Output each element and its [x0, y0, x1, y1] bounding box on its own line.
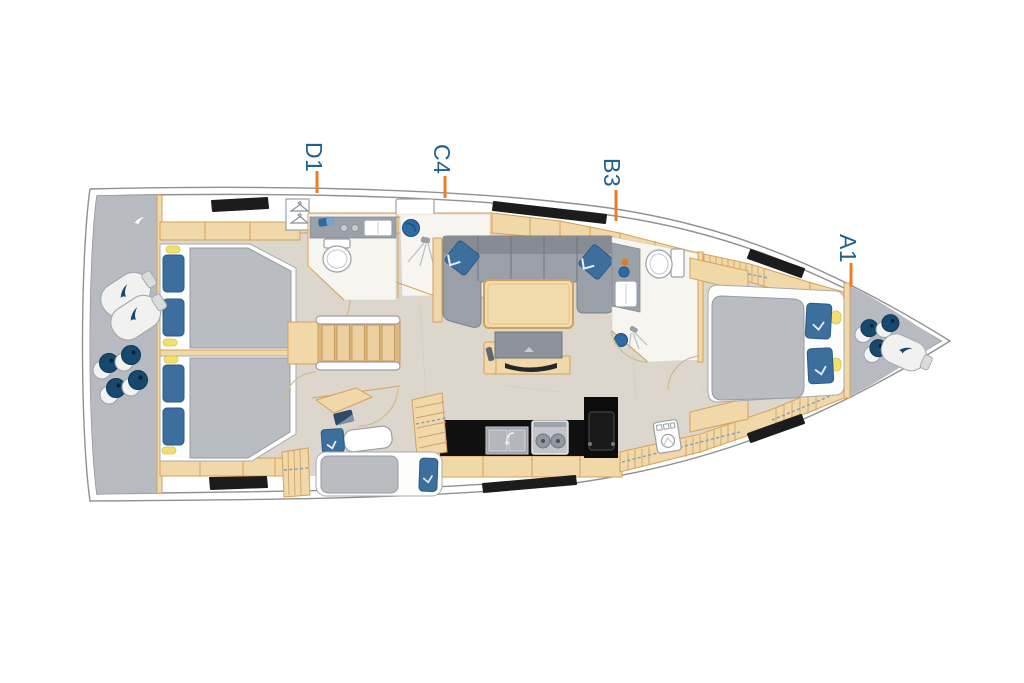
shower-drain-icon	[403, 220, 420, 237]
stair-treads	[322, 325, 395, 361]
aft-cabin-port-lower	[160, 356, 296, 461]
sink-knob	[352, 225, 359, 232]
pillow-icon	[419, 458, 438, 492]
reading-light-icon	[163, 339, 177, 346]
reading-light-icon	[831, 311, 841, 324]
tv-screen-icon	[495, 332, 562, 358]
cabin-label-a1: A1	[835, 234, 861, 263]
toilet-tank	[671, 249, 684, 277]
single-berth-mattress	[321, 456, 398, 493]
slatted-locker	[412, 393, 447, 456]
berth-divider	[160, 350, 296, 356]
port-aft-window	[212, 198, 268, 211]
double-berth-mattress	[190, 248, 291, 348]
sink-knob	[341, 225, 348, 232]
island-berth-mattress	[712, 296, 804, 400]
companionway-stairs	[288, 316, 400, 370]
pillow-icon	[805, 303, 832, 339]
cabin-label-d1: D1	[301, 142, 327, 172]
washing-machine-icon	[653, 419, 682, 453]
galley-sink-icon	[486, 427, 528, 454]
aft-hanging-locker	[282, 448, 310, 497]
stern-lazarette-deck	[90, 195, 160, 494]
stair-landing	[288, 322, 318, 364]
stair-handrail	[316, 362, 400, 370]
reading-light-icon	[166, 246, 180, 253]
seat	[321, 425, 393, 453]
saloon-table-icon	[484, 280, 573, 328]
wardrobe	[286, 199, 309, 230]
headboard-locker	[160, 222, 300, 240]
cabin-label-b3: B3	[599, 158, 625, 187]
port-aft-lower-window	[210, 477, 267, 489]
saloon-partition-wall	[433, 238, 442, 322]
pillow-icon	[807, 348, 834, 384]
floorplan-svg: D1 C4 B3 A1	[0, 0, 1024, 683]
galley-lower-locker-band	[440, 456, 622, 477]
stove-icon	[532, 421, 568, 454]
reading-light-icon	[162, 447, 176, 454]
tv-sideboard	[484, 332, 570, 374]
stair-handrail	[316, 316, 400, 324]
pillow-icon	[321, 428, 345, 452]
yacht-floorplan-canvas: D1 C4 B3 A1	[0, 0, 1024, 683]
cabin-label-c4: C4	[429, 144, 455, 174]
toiletries	[619, 267, 629, 277]
galley-lower-window	[483, 476, 576, 492]
starboard-head-bathroom	[611, 237, 703, 362]
reading-light-icon	[164, 356, 178, 363]
toiletries	[622, 259, 629, 266]
bow-bulkhead	[844, 283, 850, 398]
